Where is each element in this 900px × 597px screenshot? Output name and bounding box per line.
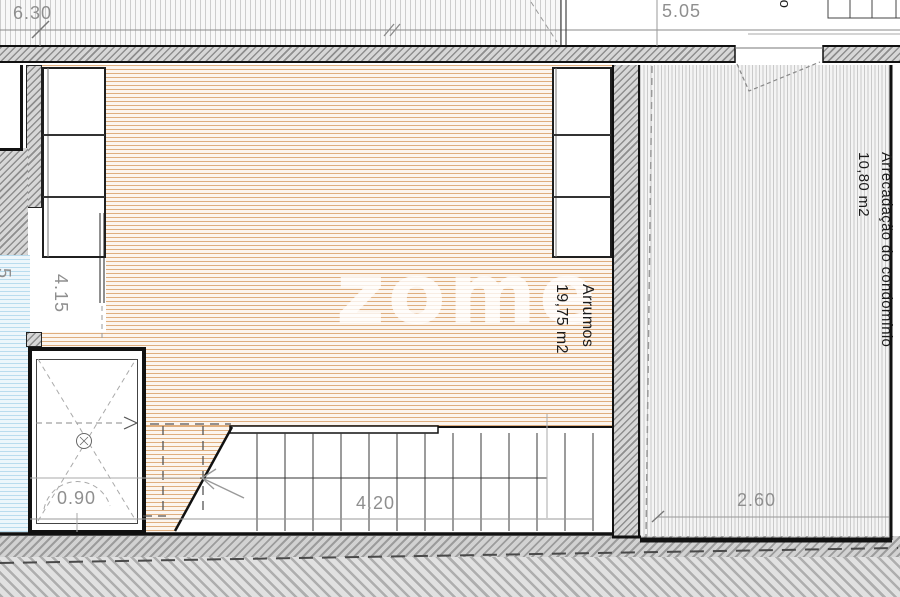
wall-left <box>26 65 42 208</box>
wall-middle <box>612 65 640 540</box>
wall-band-bottom-lower <box>0 557 900 597</box>
exterior-hatch-top <box>0 0 561 45</box>
dimension-stair-width: 4.20 <box>356 493 395 514</box>
room-area-arrumos: 19,75 m2 <box>548 284 574 354</box>
dimension-shower-width: 0.90 <box>57 488 96 509</box>
wall-band-bottom-upper <box>0 536 900 557</box>
dimension-left-vertical: 4.15 <box>50 274 71 313</box>
room-area-storage: 10,80 m2 <box>852 152 875 347</box>
dimension-top-left: 6.30 <box>13 3 52 24</box>
closet-left <box>42 67 106 258</box>
adjacent-room-fragment <box>0 65 23 151</box>
floor-plan-canvas: zome <box>0 0 900 597</box>
wall-left-stub <box>26 332 42 347</box>
room-label-arrumos: Arrumos 19,75 m2 <box>548 284 600 354</box>
dimension-storage-width: 2.60 <box>737 490 776 511</box>
room-name-arrumos: Arrumos <box>574 284 600 354</box>
closet-right <box>552 67 612 258</box>
floor-bathroom <box>0 255 30 533</box>
wall-outer-strip <box>0 148 28 255</box>
room-label-partial-top-right: ão <box>773 0 796 8</box>
dimension-partial-left-edge: 5 <box>0 268 14 279</box>
room-name-storage: Arrecadação do condomínio <box>875 152 898 347</box>
room-label-storage: Arrecadação do condomínio 10,80 m2 <box>852 152 898 347</box>
door-opening-storage <box>735 45 823 63</box>
dimension-top-right: 5.05 <box>662 1 701 22</box>
wall-top <box>0 45 900 63</box>
